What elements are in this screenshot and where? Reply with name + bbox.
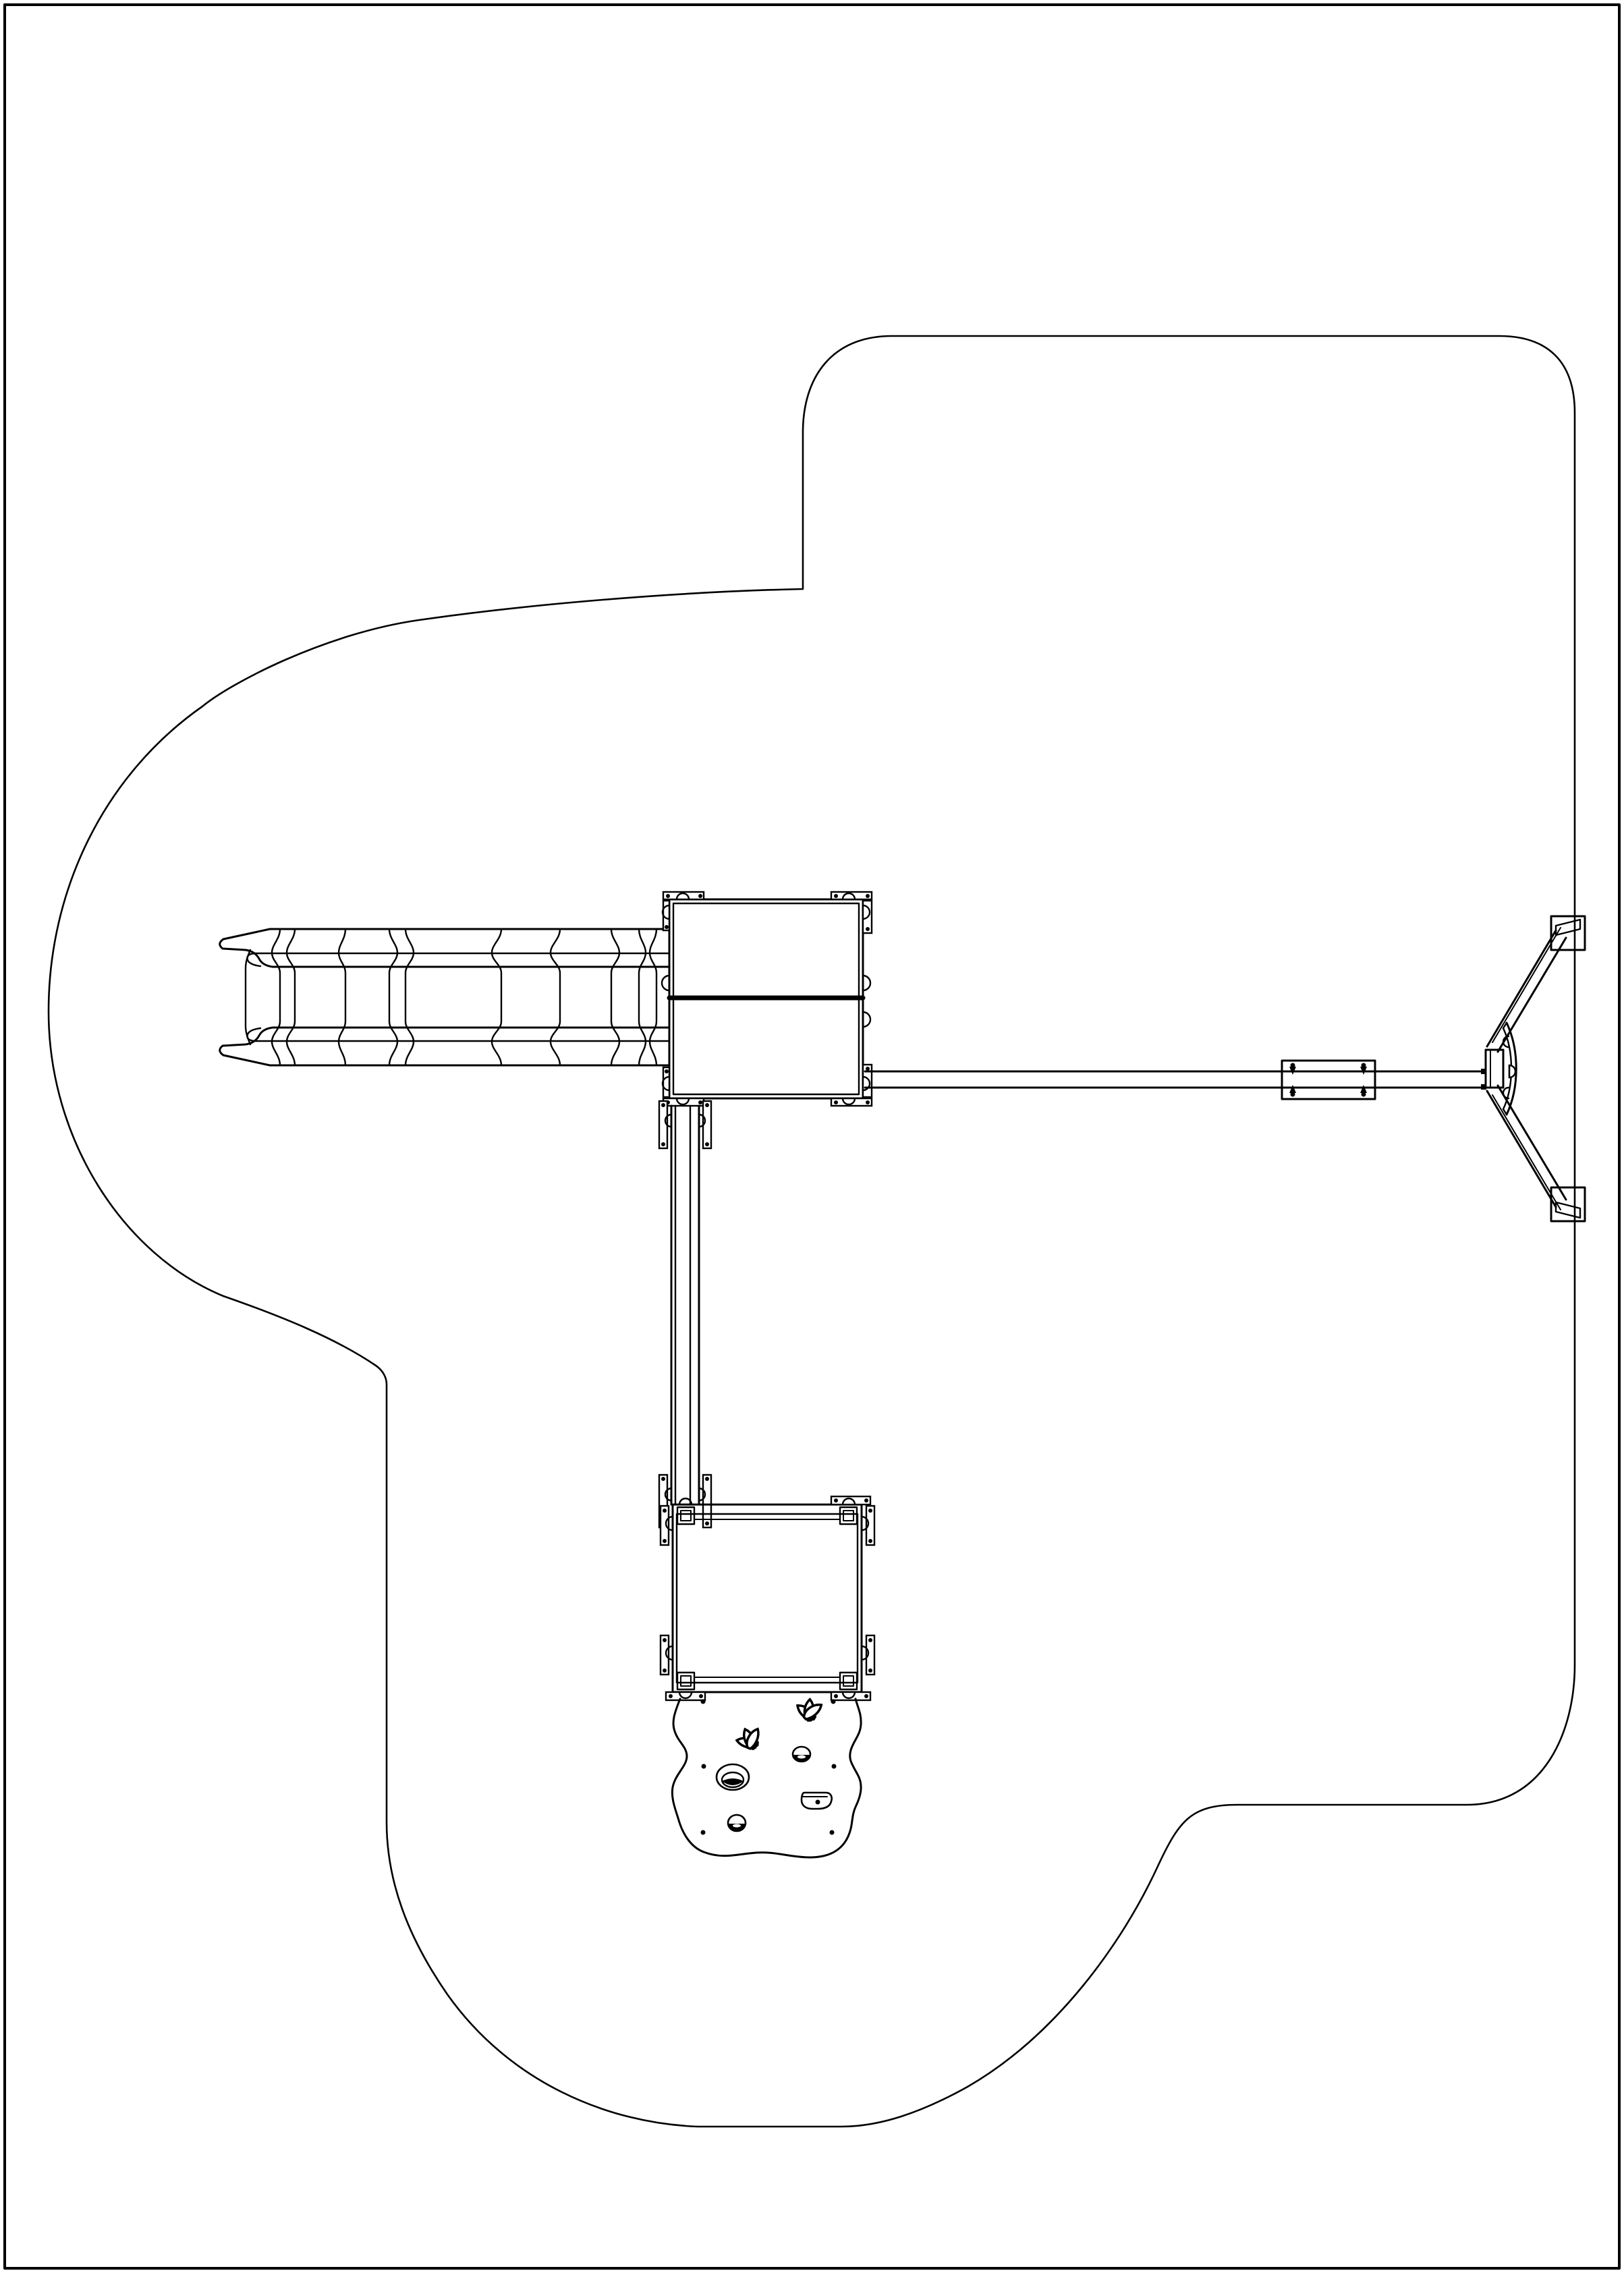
bolt-dot [702,1764,706,1769]
a-frame-hub [1486,1050,1503,1088]
screw-icon [834,1100,838,1104]
ring-hold [728,1815,746,1831]
screw-icon [663,1539,667,1543]
a-frame-lower-leg [1487,1091,1556,1207]
slide-section-line [551,929,560,1065]
screw-icon [864,1694,868,1698]
corner-post [677,1507,857,1689]
screw-icon [661,1142,665,1146]
screw-icon [866,894,870,898]
swing-beam [865,1061,1486,1099]
slide-section-line [492,929,501,1065]
screw-icon [698,1100,702,1104]
screw-icon [663,1509,667,1513]
beam-pin [1481,1084,1486,1090]
clamp-bump [662,976,669,990]
screw-icon [864,1498,868,1503]
drawing-sheet: Technical plan-view line drawing of a pl… [0,0,1624,2273]
clamp-bump [863,1012,870,1027]
screw-icon [866,927,870,931]
lower-platform-deck [673,1505,862,1692]
slide-section-line [405,929,414,1065]
ring-hold [717,1764,749,1790]
screw-icon [834,894,838,898]
swing-a-frame [1481,916,1585,1221]
bolt-dot [832,1764,837,1769]
screw-icon [669,1694,673,1698]
connector-rails [659,1101,711,1527]
screw-icon [699,1694,703,1698]
slide-inner-bottom-rail [247,1028,669,1041]
screw-icon [705,1477,709,1481]
screw-icon [866,1100,870,1104]
a-frame-upper-leg [1487,930,1556,1046]
screw-icon [705,1142,709,1146]
screw-icon [868,1638,872,1642]
screw-icon [868,1539,872,1543]
a-frame-foot-bar [1556,920,1580,935]
slide-section-line [611,929,619,1065]
bolt-dot [701,1830,706,1835]
slide-inner-top-rail [247,953,669,966]
a-frame-upper-leg [1498,938,1566,1052]
lower-platform-inner-edge [677,1514,858,1683]
screw-icon [661,1103,665,1107]
screw-icon [866,1067,870,1071]
bolt-dot [701,1700,706,1704]
bolt-dots [701,1700,837,1835]
leaf-hold [733,1726,766,1755]
slide-section-line [339,929,345,1065]
slide-section-line [287,929,295,1065]
slide-section-line [650,929,656,1065]
screw-icon [663,1638,667,1642]
screw-icon [868,1509,872,1513]
screw-icon [705,1521,709,1525]
bolt-dot [831,1700,836,1704]
slide-section-line [389,929,397,1065]
clamp-bump [863,976,870,990]
swing-seat [1282,1061,1375,1099]
swing-hangers [1289,1063,1367,1097]
lower-platform [661,1496,874,1700]
page-border [5,5,1619,2268]
screw-icon [868,1668,872,1673]
d-hook [1509,1065,1515,1077]
beam-pin [1481,1069,1486,1074]
screw-icon [666,894,670,898]
screw-icon [834,1694,838,1698]
slide-end-hook [246,950,250,1044]
screw-icon [705,1103,709,1107]
a-frame-foot-bar [1556,1202,1580,1218]
screw-icon [665,925,669,929]
main-platform [662,892,872,1106]
screw-icon [661,1477,665,1481]
playground-plan-drawing: Technical plan-view line drawing of a pl… [0,0,1624,2273]
slide-section-line [272,929,280,1065]
d-hold [802,1793,832,1809]
screw-icon [834,1498,838,1503]
screw-icon [698,894,702,898]
slide-section-line [639,929,646,1065]
bolt-dot [830,1830,835,1835]
climbing-wall [672,1696,861,1857]
screw-icon [665,1069,669,1073]
leaf-hold [792,1696,826,1726]
a-frame-lower-leg [1498,1086,1566,1200]
screw-icon [663,1668,667,1673]
ring-hold [793,1747,810,1762]
slide [220,929,669,1065]
